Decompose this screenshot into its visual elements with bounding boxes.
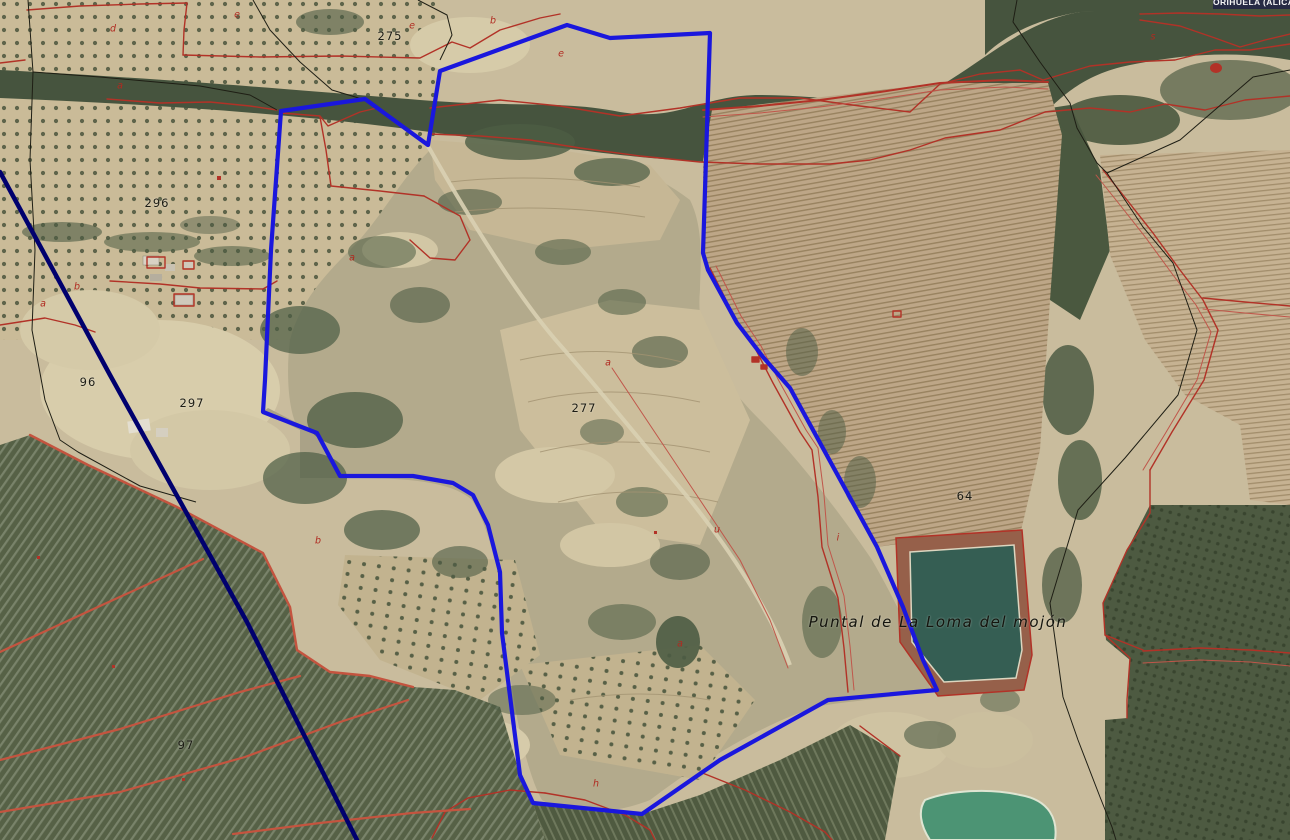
place-name-label: Puntal de La Loma del mojón	[809, 613, 1068, 631]
aerial-map-viewport[interactable]: 275 296 96 297 277 64 97 Puntal de La Lo…	[0, 0, 1290, 840]
municipality-label: ORIHUELA (ALICANTE)	[1213, 0, 1290, 9]
parcel-number: 64	[957, 489, 974, 503]
subparcel-letter: u	[714, 525, 720, 536]
parcel-number: 277	[572, 401, 597, 415]
subparcel-letter: a	[40, 299, 46, 310]
parcel-number: 296	[145, 196, 170, 210]
parcel-number: 97	[178, 738, 195, 752]
citrus-grove-dark	[1103, 505, 1290, 840]
subparcel-letter: a	[349, 253, 355, 264]
subparcel-letter: e	[409, 21, 415, 32]
subparcel-letter: e	[558, 49, 564, 60]
subparcel-letter: a	[117, 81, 123, 92]
subparcel-letter: a	[677, 639, 683, 650]
aerial-terrain	[0, 0, 1290, 840]
subparcel-letter: b	[490, 16, 496, 27]
subparcel-letter: a	[605, 358, 611, 369]
subparcel-letter: h	[593, 779, 599, 790]
subparcel-letter: i	[837, 533, 840, 544]
subparcel-letter: b	[74, 282, 80, 293]
parcel-number: 297	[180, 396, 205, 410]
subparcel-letter: d	[110, 24, 116, 35]
map-canvas	[0, 0, 1290, 840]
subparcel-letter: s	[1151, 32, 1156, 43]
parcel-number: 275	[378, 29, 403, 43]
parcel-number: 96	[80, 375, 97, 389]
subparcel-letter: e	[234, 10, 240, 21]
subparcel-letter: b	[315, 536, 321, 547]
